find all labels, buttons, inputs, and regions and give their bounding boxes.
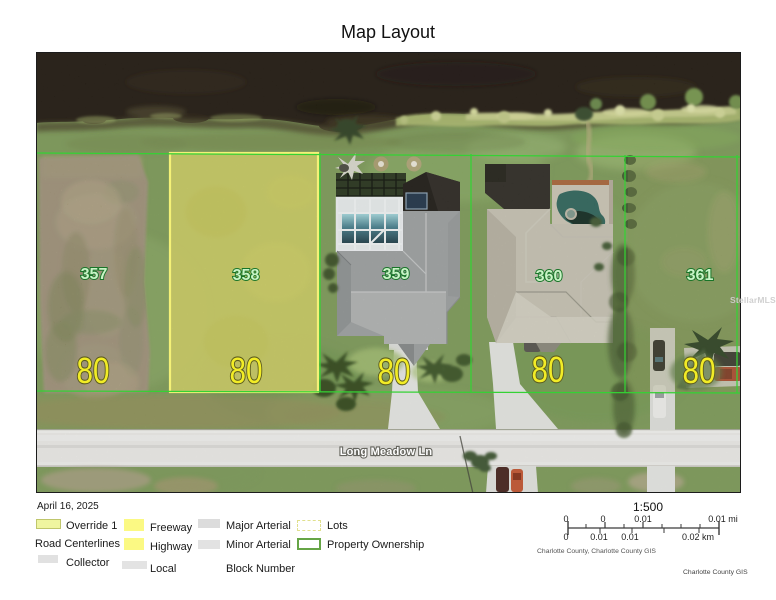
svg-text:361: 361 bbox=[687, 267, 714, 284]
svg-text:80: 80 bbox=[378, 351, 411, 392]
svg-text:360: 360 bbox=[536, 268, 563, 285]
svg-text:80: 80 bbox=[532, 349, 565, 390]
svg-text:359: 359 bbox=[383, 266, 410, 283]
svg-text:Long Meadow Ln: Long Meadow Ln bbox=[340, 446, 433, 458]
svg-text:80: 80 bbox=[230, 350, 263, 391]
svg-text:80: 80 bbox=[77, 350, 110, 391]
svg-text:358: 358 bbox=[233, 267, 260, 284]
svg-text:80: 80 bbox=[683, 350, 716, 391]
svg-text:357: 357 bbox=[81, 266, 108, 283]
